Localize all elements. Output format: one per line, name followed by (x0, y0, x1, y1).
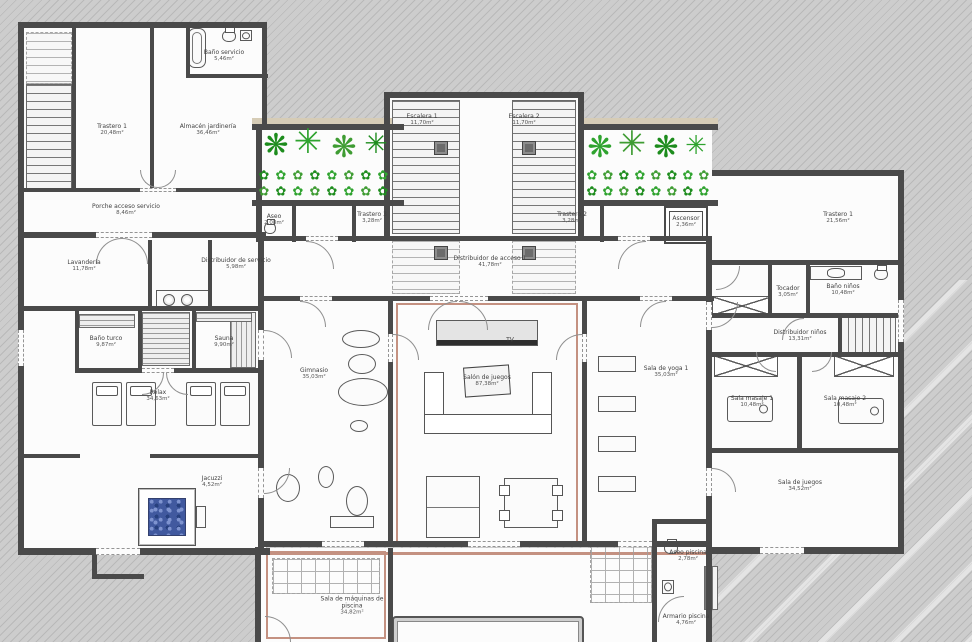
wall-segment (255, 547, 261, 642)
door-opening (640, 296, 672, 301)
plant-icon: ✿ (361, 186, 372, 199)
wall-segment (797, 355, 802, 450)
bench-icon (196, 312, 252, 322)
yoga-mat-icon (598, 396, 636, 412)
plant-icon: ✿ (667, 170, 678, 183)
room-area: 5,46m² (204, 56, 244, 63)
room-label: Sala masaje 210,48m² (824, 395, 866, 409)
room-area: 5,98m² (201, 264, 271, 271)
plant-icon: ✿ (378, 186, 389, 199)
wall-segment (252, 200, 404, 206)
room-label: Baño servicio5,46m² (204, 49, 244, 63)
room-area: 2,08m² (264, 220, 284, 227)
wall-segment (898, 170, 904, 554)
wall-segment (838, 313, 898, 317)
plant-icon: ✳ (294, 125, 323, 159)
room-label: Tocador3,05m² (776, 285, 799, 299)
plant-icon: ✿ (603, 170, 614, 183)
door-opening (18, 330, 24, 366)
room-label: Relax34,63m² (146, 389, 169, 403)
room-area: 10,48m² (824, 402, 866, 409)
wall-segment (18, 22, 24, 554)
plant-icon: ❋ (263, 131, 288, 161)
room-label: Distribuidor de servicio5,98m² (201, 257, 271, 271)
room-label: Trastero 23,28m² (557, 211, 587, 225)
room-label: Armario piscina4,76m² (663, 613, 710, 627)
wall-segment (768, 264, 772, 316)
wall-segment (186, 74, 268, 78)
face-hole (870, 407, 879, 416)
wall-segment (838, 313, 842, 357)
column-icon (434, 246, 448, 260)
sink-icon (662, 580, 674, 594)
plant-icon: ✿ (310, 170, 321, 183)
plant-icon: ✿ (293, 170, 304, 183)
door-opening (140, 188, 176, 192)
room-name: Sala de máquinas de piscina (312, 596, 392, 610)
bench-icon (142, 312, 190, 366)
staircase-icon (26, 84, 72, 190)
room-area: 11,70m² (508, 120, 539, 127)
wall-segment (706, 240, 712, 548)
wall-segment (192, 310, 196, 372)
wall-segment (75, 310, 79, 372)
room-area: 3,28m² (557, 218, 587, 225)
room-label: Salón de juegos87,38m² (463, 374, 511, 388)
staircase-dashed-icon (392, 240, 460, 294)
plant-icon: ✿ (651, 170, 662, 183)
toilet-tank (877, 265, 886, 271)
gym-equipment-icon (346, 486, 368, 516)
plant-icon: ✿ (619, 186, 630, 199)
fixture-icon (330, 516, 374, 528)
wall-segment (18, 454, 80, 458)
door-opening (306, 236, 338, 241)
door-opening (322, 541, 364, 547)
room-label: Aseo2,08m² (264, 213, 284, 227)
wall-segment (18, 548, 270, 555)
wall-segment (384, 92, 584, 98)
lounger-icon (220, 382, 250, 426)
room-area: 11,70m² (406, 120, 437, 127)
room-label: Escalera 211,70m² (508, 113, 539, 127)
room-area: 3,28m² (357, 218, 387, 225)
yoga-mat-icon (598, 436, 636, 452)
room-area: 20,48m² (97, 130, 127, 137)
vanity-icon (810, 266, 862, 280)
yoga-mat-icon (598, 356, 636, 372)
room-area: 11,78m² (67, 266, 100, 273)
wall-segment (712, 448, 900, 453)
wall-segment (150, 454, 260, 458)
door-opening (300, 296, 332, 301)
plant-icon: ✿ (310, 186, 321, 199)
gym-equipment-icon (348, 354, 376, 374)
plant-icon: ✳ (685, 133, 707, 159)
floor-plan-canvas: ❋✳❋✳❋✳❋✳✿✿✿✿✿✿✿✿✿✿✿✿✿✿✿✿✿✿✿✿✿✿✿✿✿✿✿✿✿✿✿✿… (0, 0, 972, 642)
lounger-icon (186, 382, 216, 426)
room-label: Ascensor2,36m² (672, 215, 699, 229)
door-opening (760, 547, 804, 554)
tub-inner (192, 32, 202, 64)
gym-equipment-icon (338, 378, 388, 406)
room-label: Distribuidor niños13,31m² (773, 329, 826, 343)
plant-icon: ✳ (618, 127, 647, 161)
plant-icon: ✿ (635, 186, 646, 199)
plant-icon: ✿ (699, 170, 710, 183)
fixture-icon (196, 506, 206, 528)
door-opening (468, 541, 520, 547)
column-icon (522, 141, 536, 155)
room-label: Sala de juegos34,52m² (778, 479, 822, 493)
sink-icon (240, 30, 252, 41)
wall-segment (72, 26, 76, 190)
room-label: TV (506, 336, 514, 343)
plant-icon: ❋ (653, 133, 678, 163)
room-area: 13,31m² (773, 336, 826, 343)
room-label: Aseo piscina2,78m² (669, 549, 707, 563)
room-area: 10,48m² (731, 402, 773, 409)
wall-segment (18, 22, 266, 28)
room-label: Trastero 121,56m² (823, 211, 853, 225)
room-label: Porche acceso servicio8,46m² (92, 203, 160, 217)
room-area: 34,63m² (146, 396, 169, 403)
wall-segment (138, 310, 142, 372)
room-area: 35,03m² (644, 372, 689, 379)
door-opening (96, 548, 140, 555)
wall-segment (148, 240, 152, 310)
wall-segment (258, 240, 264, 554)
room-area: 41,78m² (454, 262, 527, 269)
wall-segment (806, 264, 810, 316)
room-label: Distribuidor de acceso 141,78m² (454, 255, 527, 269)
wall-segment (186, 22, 190, 78)
plant-icon: ✿ (603, 186, 614, 199)
plant-icon: ✿ (276, 186, 287, 199)
wall-segment (712, 170, 904, 176)
column-icon (434, 141, 448, 155)
room-label: Gimnasio35,03m² (300, 367, 328, 381)
gym-equipment-icon (318, 466, 334, 488)
room-area: 34,82m² (312, 610, 392, 617)
room-label: Almacén jardinería36,46m² (180, 123, 236, 137)
wall-segment (92, 574, 144, 579)
wall-segment (838, 353, 898, 357)
room-area: 4,52m² (202, 482, 223, 489)
room-area: 2,78m² (669, 556, 707, 563)
room-name: TV (506, 336, 514, 343)
room-area: 36,46m² (180, 130, 236, 137)
toilet-icon (874, 268, 888, 280)
lounger-head (224, 386, 246, 396)
door-opening (582, 334, 587, 362)
wall-segment (150, 26, 154, 190)
room-label: Lavandería11,78m² (67, 259, 100, 273)
room-area: 9,87m² (90, 342, 123, 349)
vanity-basin (827, 268, 845, 278)
gym-equipment-icon (342, 330, 380, 348)
plant-icon: ✿ (344, 170, 355, 183)
room-label: Sauna9,90m² (214, 335, 234, 349)
plant-icon: ✿ (699, 186, 710, 199)
room-label: Sala de yoga 135,03m² (644, 365, 689, 379)
plant-icon: ✿ (667, 186, 678, 199)
wall-segment (652, 519, 657, 642)
swimming-pool-icon (392, 616, 584, 642)
plant-icon: ✳ (364, 130, 387, 158)
lounger-head (96, 386, 118, 396)
plant-icon: ✿ (651, 186, 662, 199)
room-area: 34,52m² (778, 486, 822, 493)
room-label: Trastero 120,48m² (97, 123, 127, 137)
wall-segment (652, 519, 708, 524)
room-label: Baño niños10,48m² (826, 283, 859, 297)
plant-icon: ✿ (683, 170, 694, 183)
machinery-outline-icon (272, 558, 380, 594)
room-label: Trastero 33,28m² (357, 211, 387, 225)
plant-icon: ✿ (344, 186, 355, 199)
room-label: Sala masaje 110,48m² (731, 395, 773, 409)
plant-icon: ✿ (619, 170, 630, 183)
wall-segment (208, 240, 212, 310)
bench-icon (79, 314, 135, 328)
yoga-mat-icon (598, 476, 636, 492)
sink-bowl (242, 32, 250, 39)
room-area: 87,38m² (463, 381, 511, 388)
wardrobe-icon (834, 355, 894, 377)
room-label: Escalera 111,70m² (406, 113, 437, 127)
room-area: 4,76m² (663, 620, 710, 627)
plant-icon: ✿ (587, 170, 598, 183)
room-area: 2,36m² (672, 222, 699, 229)
plant-icon: ✿ (378, 170, 389, 183)
water-icon (148, 498, 186, 536)
gym-equipment-icon (350, 420, 368, 432)
wall-segment (578, 200, 718, 206)
lounger-head (190, 386, 212, 396)
plant-icon: ❋ (331, 133, 356, 163)
staircase-dashed-icon (26, 32, 72, 84)
table-midline (427, 507, 479, 508)
plant-icon: ❋ (587, 133, 612, 163)
plant-icon: ✿ (587, 186, 598, 199)
room-label: Baño turco9,87m² (90, 335, 123, 349)
wall-segment (712, 547, 902, 554)
plant-icon: ✿ (293, 186, 304, 199)
room-label: Jacuzzi4,52m² (202, 475, 223, 489)
plant-icon: ✿ (683, 186, 694, 199)
door-opening (898, 300, 904, 342)
plant-icon: ✿ (259, 186, 270, 199)
plant-icon: ✿ (259, 170, 270, 183)
plant-icon: ✿ (276, 170, 287, 183)
machinery-outline-icon (590, 545, 652, 603)
lounger-icon (92, 382, 122, 426)
plant-icon: ✿ (327, 186, 338, 199)
dining-table-icon (504, 478, 558, 528)
staircase-icon (840, 316, 896, 356)
toilet-icon (222, 30, 236, 42)
jacuzzi-icon (138, 488, 196, 546)
room-area: 9,90m² (214, 342, 234, 349)
game-table-icon (426, 476, 480, 538)
room-area: 21,56m² (823, 218, 853, 225)
room-area: 3,05m² (776, 292, 799, 299)
room-area: 8,46m² (92, 210, 160, 217)
room-area: 10,48m² (826, 290, 859, 297)
room-label: Sala de máquinas de piscina34,82m² (312, 596, 392, 617)
plant-icon: ✿ (635, 170, 646, 183)
door-opening (618, 541, 652, 547)
plant-icon: ✿ (327, 170, 338, 183)
sink-bowl (664, 582, 672, 591)
plant-icon: ✿ (361, 170, 372, 183)
tv-bar (437, 340, 537, 345)
room-area: 35,03m² (300, 374, 328, 381)
